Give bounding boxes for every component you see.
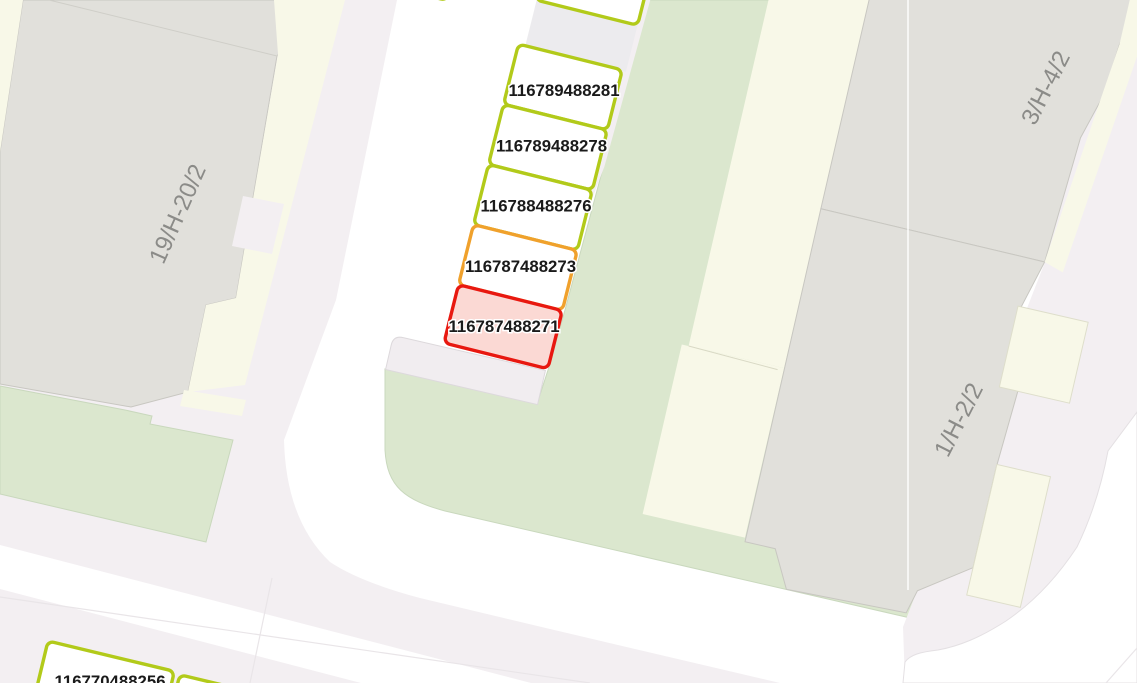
svg-text:116787488273: 116787488273 xyxy=(465,257,576,276)
svg-text:116788488276: 116788488276 xyxy=(480,197,591,216)
svg-text:116789488278: 116789488278 xyxy=(496,137,607,156)
svg-text:116770488256: 116770488256 xyxy=(54,672,165,683)
svg-text:116787488271: 116787488271 xyxy=(448,317,559,336)
svg-text:116789488281: 116789488281 xyxy=(508,81,619,100)
